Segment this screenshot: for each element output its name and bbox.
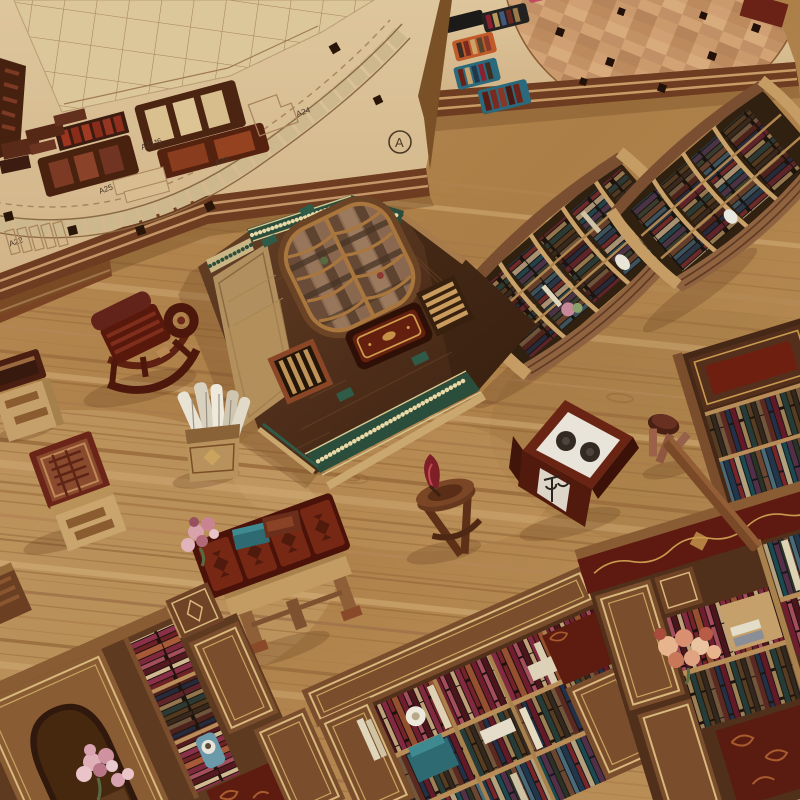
svg-text:A: A xyxy=(395,135,404,150)
